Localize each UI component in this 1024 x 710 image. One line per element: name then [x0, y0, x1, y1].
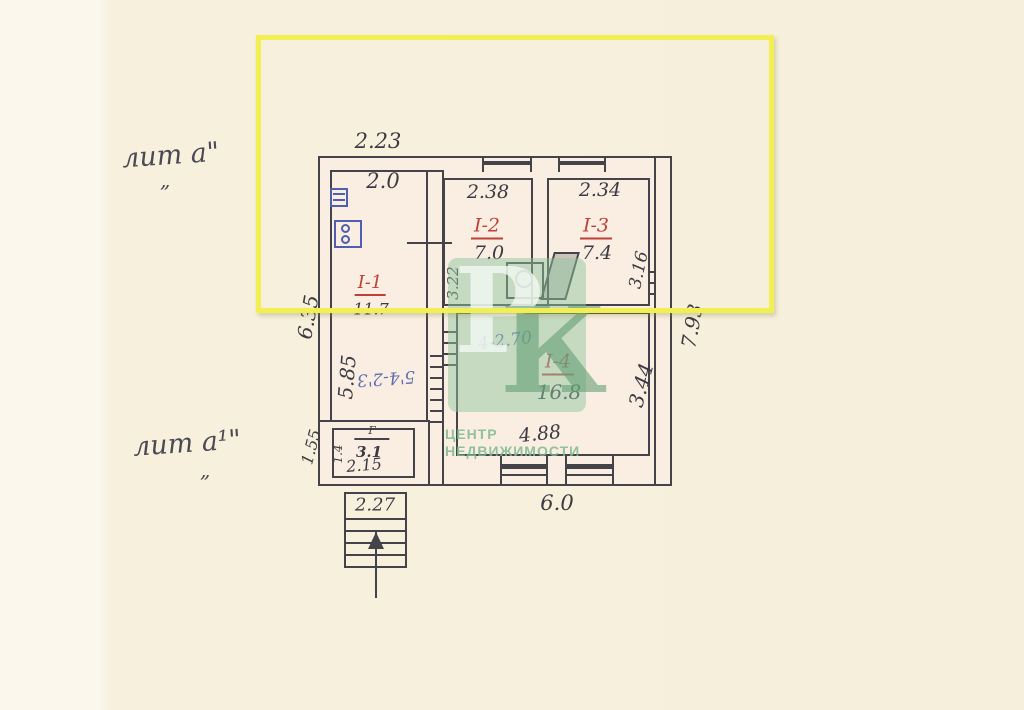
annex-height: 1.4	[331, 444, 345, 463]
litera-a1-mark: „	[200, 458, 210, 482]
window-symbol-bottom-2	[567, 464, 612, 469]
window-sill-line	[502, 474, 546, 476]
stair-step-line	[344, 518, 407, 520]
annex-top-outer-wall	[318, 420, 430, 422]
dim-porch-width: 2.27	[355, 495, 395, 516]
annex-width: 2.15	[345, 454, 382, 476]
highlight-rectangle	[256, 35, 774, 313]
window-jamb	[500, 456, 502, 486]
note-red-blue-ink: 5'4-2'3	[356, 366, 416, 390]
entrance-arrow-icon	[368, 532, 384, 549]
window-symbol-bottom-1	[502, 464, 546, 469]
annex-label: Г	[354, 424, 389, 440]
dim-bottom-width: 6.0	[540, 491, 573, 515]
litera-a1-label: лит а¹"	[132, 424, 242, 462]
watermark-text-line2: НЕДВИЖИМОСТИ	[445, 443, 580, 459]
window-jamb	[546, 456, 548, 486]
floorplan-scan: 2.23 2.0 2.38 2.34 I-2 7.0 I-3 7.4 I-1 1…	[0, 0, 1024, 710]
litera-a-label: лит а"	[121, 137, 220, 175]
watermark-text-line1: ЦЕНТР	[445, 426, 498, 442]
wall-hatch-left	[430, 346, 442, 424]
litera-a-mark: „	[160, 168, 170, 192]
partition-wall-lower-line	[428, 420, 430, 486]
window-jamb	[612, 456, 614, 486]
window-jamb	[565, 456, 567, 486]
window-sill-line	[567, 474, 612, 476]
